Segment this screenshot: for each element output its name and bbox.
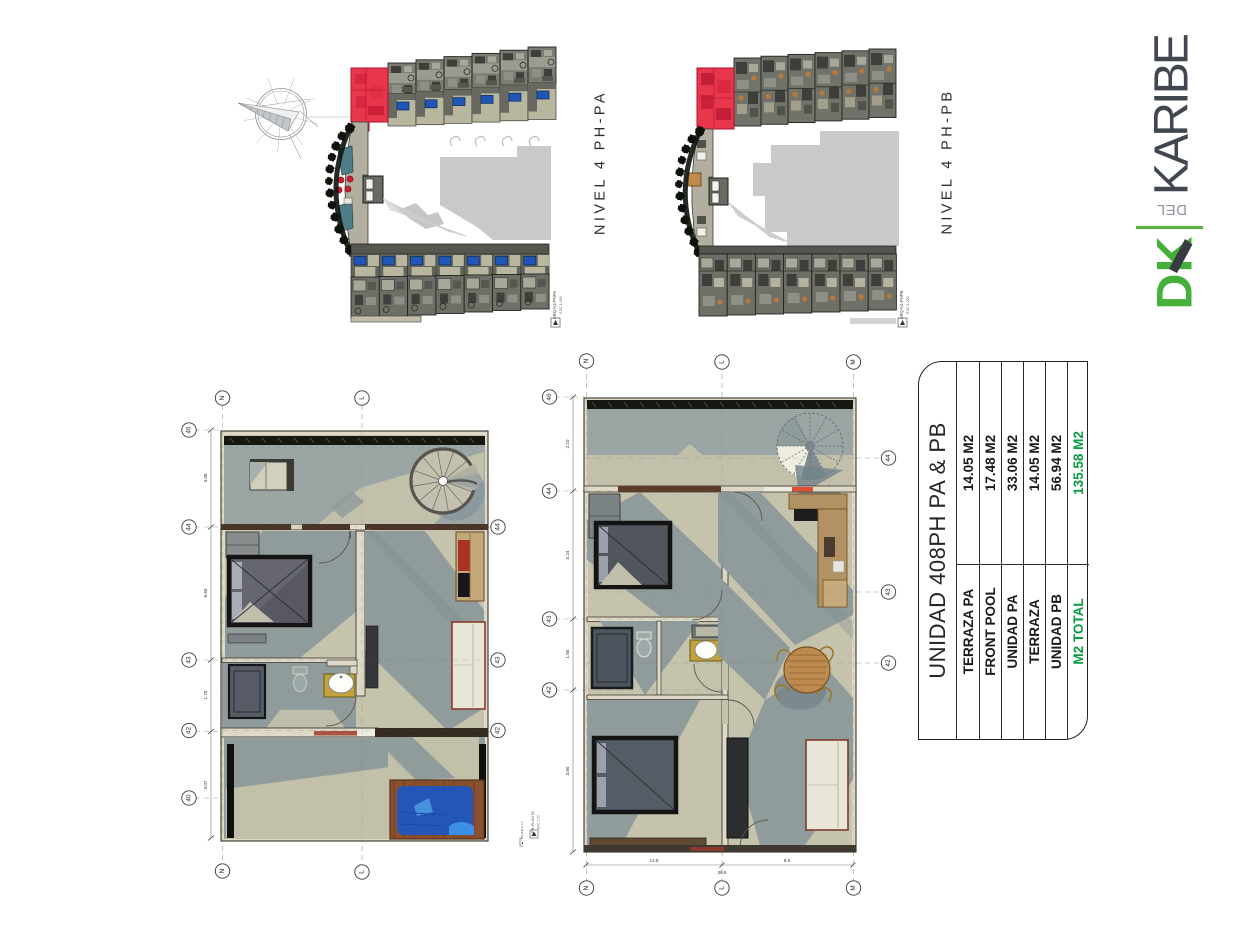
svg-text:43: 43 [546, 615, 553, 623]
svg-text:ESC 1:50: ESC 1:50 [537, 815, 541, 830]
svg-text:N: N [219, 868, 226, 873]
svg-text:ARQ-N4-PHPA: ARQ-N4-PHPA [552, 291, 557, 320]
svg-text:3.07: 3.07 [203, 780, 208, 789]
svg-text:43: 43 [885, 588, 892, 596]
svg-text:6.60: 6.60 [203, 588, 208, 597]
svg-text:3.60: 3.60 [565, 766, 570, 775]
svg-text:40: 40 [186, 794, 193, 802]
svg-text:3.08: 3.08 [203, 473, 208, 482]
svg-text:L: L [359, 396, 366, 400]
svg-text:M: M [850, 359, 857, 364]
svg-text:ESC 1:200: ESC 1:200 [906, 296, 910, 313]
svg-text:TERRAZA: TERRAZA [520, 820, 523, 839]
svg-text:N: N [219, 395, 226, 400]
svg-text:ARQ-N4-PHPB: ARQ-N4-PHPB [899, 290, 904, 319]
svg-text:43: 43 [186, 656, 193, 664]
svg-text:46: 46 [186, 426, 193, 434]
svg-text:14.5: 14.5 [650, 858, 659, 863]
svg-text:44: 44 [546, 487, 553, 495]
svg-text:ESC 1:200: ESC 1:200 [559, 296, 563, 313]
svg-text:36.5: 36.5 [718, 870, 727, 875]
svg-text:2.10: 2.10 [565, 439, 570, 448]
svg-text:PB-PLANTA: PB-PLANTA [530, 811, 535, 833]
svg-text:9.5: 9.5 [784, 858, 791, 863]
svg-text:L: L [359, 870, 366, 874]
svg-text:44: 44 [885, 454, 892, 462]
svg-text:46: 46 [546, 393, 553, 401]
svg-text:M: M [850, 885, 857, 890]
svg-text:L: L [719, 360, 726, 364]
svg-text:44: 44 [186, 523, 193, 531]
svg-text:N: N [583, 885, 590, 890]
svg-text:44: 44 [495, 523, 502, 531]
svg-text:1.70: 1.70 [203, 690, 208, 699]
svg-text:43: 43 [495, 656, 502, 664]
svg-text:42: 42 [546, 686, 553, 694]
svg-text:1.60: 1.60 [565, 649, 570, 658]
svg-text:42: 42 [186, 727, 193, 735]
svg-text:5.24: 5.24 [565, 550, 570, 559]
svg-text:L: L [719, 886, 726, 890]
svg-text:42: 42 [495, 727, 502, 735]
svg-text:42: 42 [885, 659, 892, 667]
svg-text:N: N [583, 358, 590, 363]
